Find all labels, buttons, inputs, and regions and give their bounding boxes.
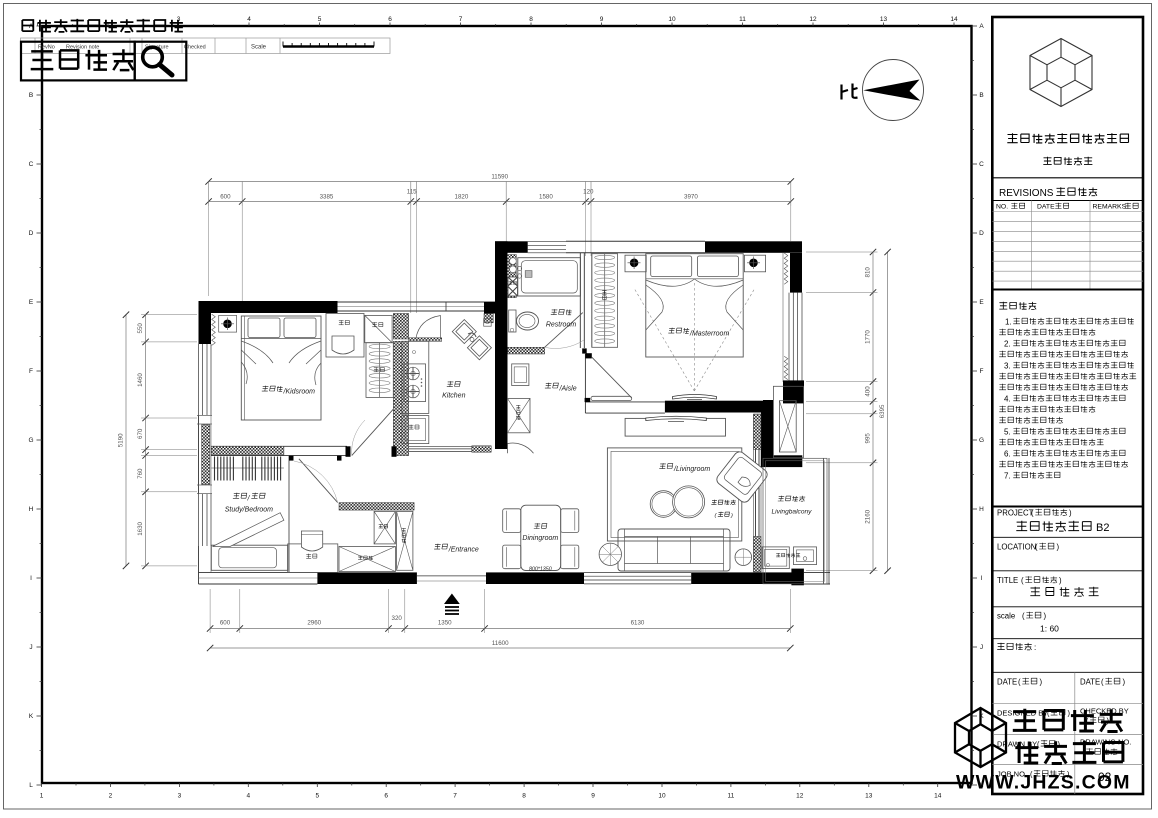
svg-text:11: 11 [739, 16, 746, 23]
svg-text:760: 760 [137, 468, 144, 479]
svg-text:9: 9 [600, 16, 604, 23]
svg-text:600: 600 [220, 194, 231, 201]
svg-text:G: G [28, 437, 33, 444]
svg-text:G: G [979, 437, 984, 444]
svg-text:(: ( [1022, 612, 1025, 621]
svg-text:J: J [980, 644, 983, 651]
svg-text:WWW.JHZS.COM: WWW.JHZS.COM [956, 772, 1131, 794]
svg-text:2: 2 [109, 793, 113, 800]
svg-text:10: 10 [668, 16, 676, 23]
svg-text:C: C [979, 161, 984, 168]
svg-text:(: ( [1101, 678, 1104, 687]
svg-text:5190: 5190 [118, 433, 125, 447]
svg-text:Livingbalcony: Livingbalcony [772, 509, 813, 516]
svg-text:E: E [979, 299, 984, 306]
svg-text:(: ( [1031, 509, 1034, 518]
svg-text:/Livingroom: /Livingroom [673, 466, 710, 473]
svg-text:REMARKS: REMARKS [1093, 204, 1127, 211]
svg-text:12: 12 [796, 793, 804, 800]
svg-text:11600: 11600 [492, 640, 509, 647]
svg-text:7.: 7. [1004, 472, 1011, 481]
svg-text:4: 4 [246, 793, 250, 800]
svg-text:DATE: DATE [997, 678, 1017, 687]
svg-text:4.: 4. [1004, 395, 1011, 404]
svg-text:670: 670 [137, 428, 144, 439]
svg-text:): ) [1123, 678, 1126, 687]
svg-text:1: 1 [40, 793, 44, 800]
svg-text:320: 320 [392, 615, 403, 622]
svg-text:): ) [1059, 576, 1062, 585]
svg-text:D: D [29, 230, 34, 237]
svg-text:11: 11 [728, 793, 735, 800]
svg-text:Scale: Scale [251, 45, 267, 51]
svg-text:I: I [30, 575, 32, 582]
svg-text:120: 120 [583, 189, 594, 196]
svg-text:2160: 2160 [865, 509, 872, 523]
svg-text:13: 13 [880, 16, 888, 23]
svg-text:6.: 6. [1004, 450, 1011, 459]
svg-text:3385: 3385 [320, 194, 334, 201]
svg-text:1.: 1. [1005, 318, 1012, 327]
svg-text:Restroom: Restroom [546, 322, 577, 329]
svg-text:/Aisle: /Aisle [559, 386, 577, 393]
svg-text:(: ( [1018, 678, 1021, 687]
svg-text:6395: 6395 [879, 404, 886, 418]
svg-text:800*1350: 800*1350 [529, 567, 552, 573]
svg-text:Kitchen: Kitchen [442, 393, 465, 400]
svg-text:DATE: DATE [1037, 204, 1055, 211]
svg-text:A: A [979, 23, 984, 30]
svg-text:F: F [980, 368, 984, 375]
svg-text:3.: 3. [1004, 362, 1011, 371]
svg-text:2960: 2960 [307, 620, 321, 627]
svg-text:6: 6 [388, 16, 392, 23]
svg-text:DATE: DATE [1080, 678, 1100, 687]
svg-text:): ) [1044, 612, 1047, 621]
svg-text:I: I [981, 575, 983, 582]
svg-text:550: 550 [137, 323, 144, 334]
svg-text:1630: 1630 [137, 521, 144, 535]
svg-text:13: 13 [865, 793, 873, 800]
svg-text:3970: 3970 [684, 194, 698, 201]
svg-text::: : [1034, 643, 1036, 652]
svg-text:995: 995 [865, 433, 872, 444]
svg-text:RevNo: RevNo [38, 45, 55, 51]
svg-text:TITLE: TITLE [997, 576, 1018, 585]
svg-text:1820: 1820 [455, 194, 469, 201]
svg-text:J: J [29, 644, 32, 651]
svg-text:600: 600 [220, 620, 231, 627]
svg-text:B: B [979, 92, 983, 99]
svg-text:1580: 1580 [539, 194, 553, 201]
svg-text:1: 60: 1: 60 [1040, 624, 1059, 634]
svg-text:/Kidsroom: /Kidsroom [283, 388, 316, 395]
svg-text:): ) [1069, 509, 1072, 518]
svg-text:400: 400 [865, 386, 872, 397]
svg-text:1770: 1770 [865, 330, 872, 344]
svg-text:Study/Bedroom: Study/Bedroom [225, 507, 273, 514]
svg-text:10: 10 [658, 793, 666, 800]
svg-text:scale: scale [997, 612, 1015, 621]
svg-text:8: 8 [522, 793, 526, 800]
svg-text:F: F [29, 368, 33, 375]
svg-text:6130: 6130 [631, 620, 645, 627]
svg-text:): ) [1057, 543, 1060, 552]
svg-text:1460: 1460 [137, 373, 144, 387]
svg-text:C: C [29, 161, 34, 168]
svg-text:(: ( [1035, 543, 1038, 552]
svg-text:11590: 11590 [491, 174, 508, 181]
svg-text:5: 5 [315, 793, 319, 800]
svg-text:1350: 1350 [438, 620, 452, 627]
svg-text:(: ( [1021, 576, 1024, 585]
svg-text:810: 810 [865, 267, 872, 278]
svg-text:B: B [29, 92, 33, 99]
svg-text:7: 7 [453, 793, 457, 800]
svg-text:L: L [29, 782, 33, 789]
svg-text:): ) [1040, 678, 1043, 687]
svg-text:H: H [29, 506, 34, 513]
svg-text:PROJECT: PROJECT [997, 509, 1034, 518]
svg-text:E: E [29, 299, 34, 306]
svg-text:NO.: NO. [996, 204, 1008, 211]
svg-text:6: 6 [384, 793, 388, 800]
svg-text:14: 14 [950, 16, 958, 23]
svg-text:): ) [730, 513, 733, 519]
svg-text:B2: B2 [1096, 522, 1109, 534]
svg-text:7: 7 [459, 16, 463, 23]
svg-text:LOCATION: LOCATION [997, 543, 1036, 552]
svg-text:8: 8 [529, 16, 533, 23]
svg-text:115: 115 [407, 189, 417, 196]
svg-text:/Entrance: /Entrance [448, 547, 479, 554]
svg-text:REVISIONS: REVISIONS [999, 188, 1054, 199]
svg-text:5.: 5. [1004, 428, 1011, 437]
svg-text:/Masterroom: /Masterroom [689, 330, 729, 337]
svg-text:14: 14 [934, 793, 942, 800]
svg-text:2.: 2. [1004, 340, 1011, 349]
svg-text:K: K [29, 713, 34, 720]
svg-text:12: 12 [809, 16, 817, 23]
svg-text:4: 4 [247, 16, 251, 23]
svg-text:D: D [979, 230, 984, 237]
svg-text:Diningroom: Diningroom [522, 535, 558, 542]
svg-text:5: 5 [318, 16, 322, 23]
svg-text:3: 3 [178, 793, 182, 800]
svg-text:H: H [979, 506, 984, 513]
svg-text:9: 9 [591, 793, 595, 800]
